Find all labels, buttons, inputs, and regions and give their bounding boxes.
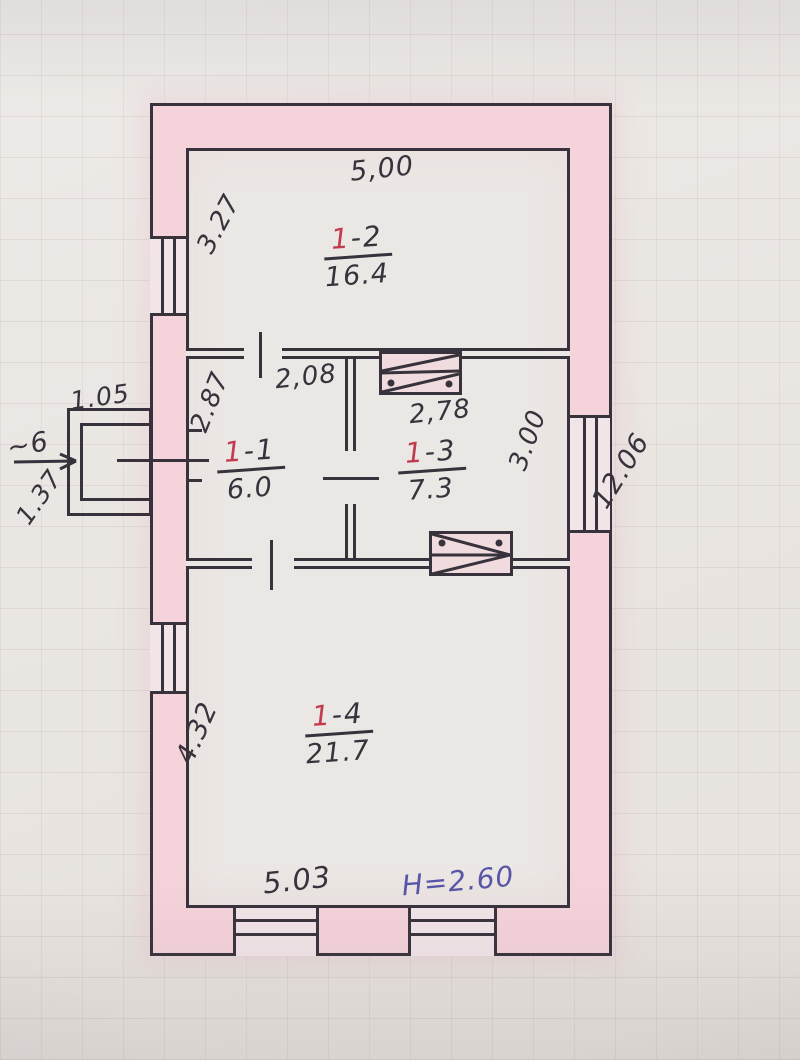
window-panes: [236, 919, 316, 936]
window-left-room14: [150, 622, 186, 694]
floor-plan-sheet: 1-2 16.4 1-1 6.0 1-3 7.3 1-4 21.7 5,00 3…: [0, 0, 800, 1060]
room-1-1-label: 1-1 6.0: [216, 436, 284, 504]
room-number-rest: -3: [424, 433, 458, 468]
dim-room11-width: 2,08: [274, 359, 339, 395]
stove-icon-room13-north: [379, 351, 462, 395]
window-panes: [583, 418, 598, 530]
dim-room13-width: 2,78: [408, 394, 473, 430]
room-number-red-part: 1: [404, 436, 426, 470]
room-1-4-number: 1-4: [303, 698, 373, 738]
room-1-4-label: 1-4 21.7: [304, 700, 372, 768]
room-number-red-part: 1: [223, 435, 245, 469]
partition-wall-c-left: [186, 558, 252, 569]
room-1-2-area: 16.4: [322, 260, 392, 293]
partition-wall-b-bottom: [345, 504, 356, 558]
room-number-rest: -1: [243, 432, 277, 467]
room-1-4-area: 21.7: [303, 737, 373, 770]
room-1-1-area: 6.0: [215, 473, 285, 506]
dim-bottom-width: 5.03: [261, 860, 333, 901]
room-number-rest: -4: [331, 696, 365, 731]
room-1-3-label: 1-3 7.3: [397, 437, 465, 505]
room-1-3-number: 1-3: [396, 435, 466, 475]
window-panes: [161, 239, 176, 313]
room-number-red-part: 1: [330, 222, 352, 256]
dim-porch-height: 1.37: [10, 464, 68, 530]
window-bottom-right-room14: [408, 908, 497, 956]
door-mark-room11-room14: [270, 540, 273, 590]
window-bottom-left-room14: [233, 908, 319, 956]
room-1-1-number: 1-1: [215, 434, 285, 474]
window-left-room12: [150, 236, 186, 316]
room-number-red-part: 1: [311, 699, 333, 733]
partition-wall-a-left: [186, 348, 244, 359]
room-number-rest: -2: [350, 219, 384, 254]
partition-wall-b-top: [345, 359, 356, 451]
stove-icon-room13-south: [429, 531, 513, 576]
window-panes: [411, 919, 494, 936]
room-1-3-area: 7.3: [396, 474, 466, 507]
window-panes: [161, 625, 176, 691]
room-1-2-label: 1-2 16.4: [323, 223, 391, 291]
room-1-2-number: 1-2: [322, 221, 392, 261]
door-mark-room11-room12: [259, 332, 262, 378]
door-mark-room11-room13: [323, 477, 379, 480]
entry-door-line: [117, 459, 209, 462]
entry-door-jamb-bottom: [186, 479, 202, 482]
